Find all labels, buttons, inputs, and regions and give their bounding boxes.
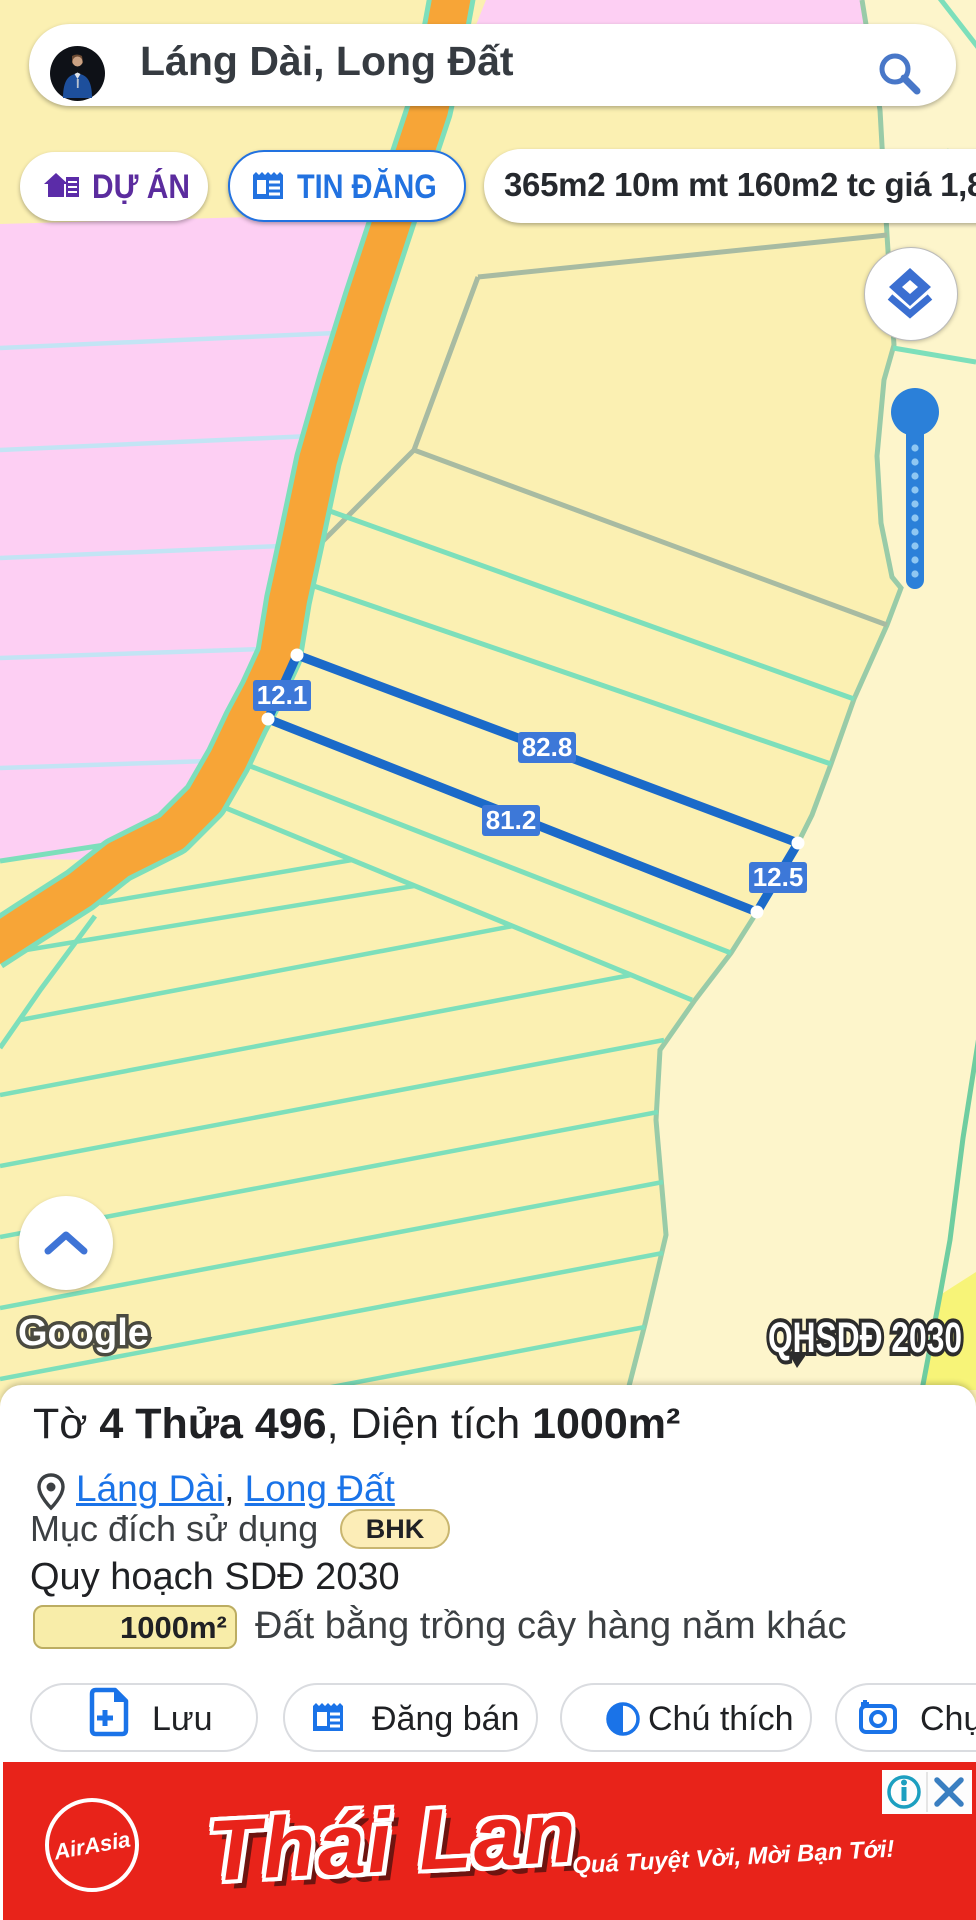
svg-text:12.5: 12.5 bbox=[753, 862, 804, 892]
svg-text:81.2: 81.2 bbox=[486, 805, 537, 835]
svg-text:AirAsia: AirAsia bbox=[51, 1826, 132, 1864]
svg-text:QHSDĐ 2030: QHSDĐ 2030 bbox=[768, 1314, 962, 1362]
svg-text:82.8: 82.8 bbox=[522, 732, 573, 762]
svg-text:Google: Google bbox=[18, 1312, 149, 1354]
svg-text:12.1: 12.1 bbox=[257, 680, 308, 710]
